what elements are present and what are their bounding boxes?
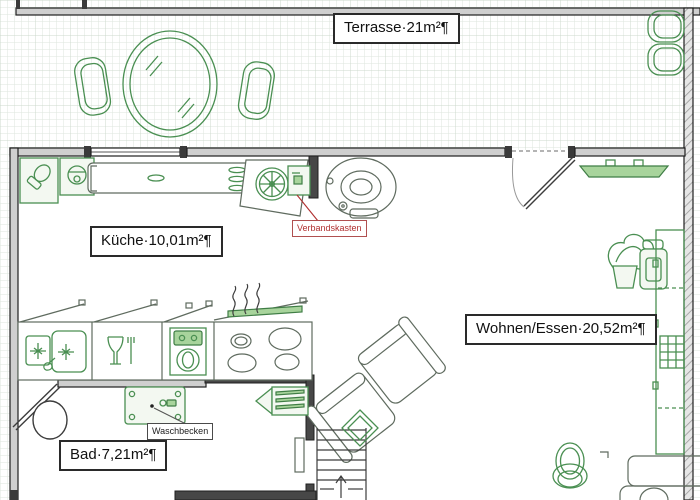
- mid-wall-left: [10, 148, 86, 156]
- fin-heater-icon: [256, 387, 308, 415]
- tv-panel-icon: [580, 160, 668, 177]
- mid-wall-center: [187, 148, 505, 156]
- kitchen-upper: [20, 158, 396, 221]
- wc-toilet-icon: [553, 443, 587, 488]
- left-exterior-wall: [10, 148, 18, 500]
- bad-door-leaf: [295, 438, 304, 472]
- annotation-verbandskasten: Verbandskasten: [292, 220, 367, 237]
- round-side-table-icon: [33, 401, 67, 439]
- bad-top-wall: [58, 380, 206, 387]
- radiator-grid-icon: [660, 336, 684, 368]
- sideboard-icon: [653, 230, 684, 454]
- right-exterior-wall: [684, 8, 693, 500]
- room-label-wohnen-essen: Wohnen/Essen·20,52m²¶: [465, 314, 657, 345]
- room-label-kueche: Küche·10,01m²¶: [90, 226, 223, 257]
- kitchen-counter-icon: [88, 163, 258, 193]
- room-label-terrasse: Terrasse·21m²¶: [333, 13, 460, 44]
- bottom-wall: [175, 491, 316, 500]
- washbasin-icon: [125, 387, 186, 424]
- door-swing-icon: [512, 157, 575, 209]
- corner-appliance-icon: [20, 158, 58, 203]
- window-icon: [91, 148, 180, 156]
- floor-plan: Terrasse·21m²¶ Küche·10,01m²¶ Wohnen/Ess…: [0, 0, 700, 500]
- annotation-waschbecken: Waschbecken: [147, 423, 213, 440]
- round-table-icon: [326, 158, 396, 218]
- kitchen-lower: [18, 283, 312, 380]
- room-label-bad: Bad·7,21m²¶: [59, 440, 167, 471]
- mid-wall-right: [575, 148, 685, 156]
